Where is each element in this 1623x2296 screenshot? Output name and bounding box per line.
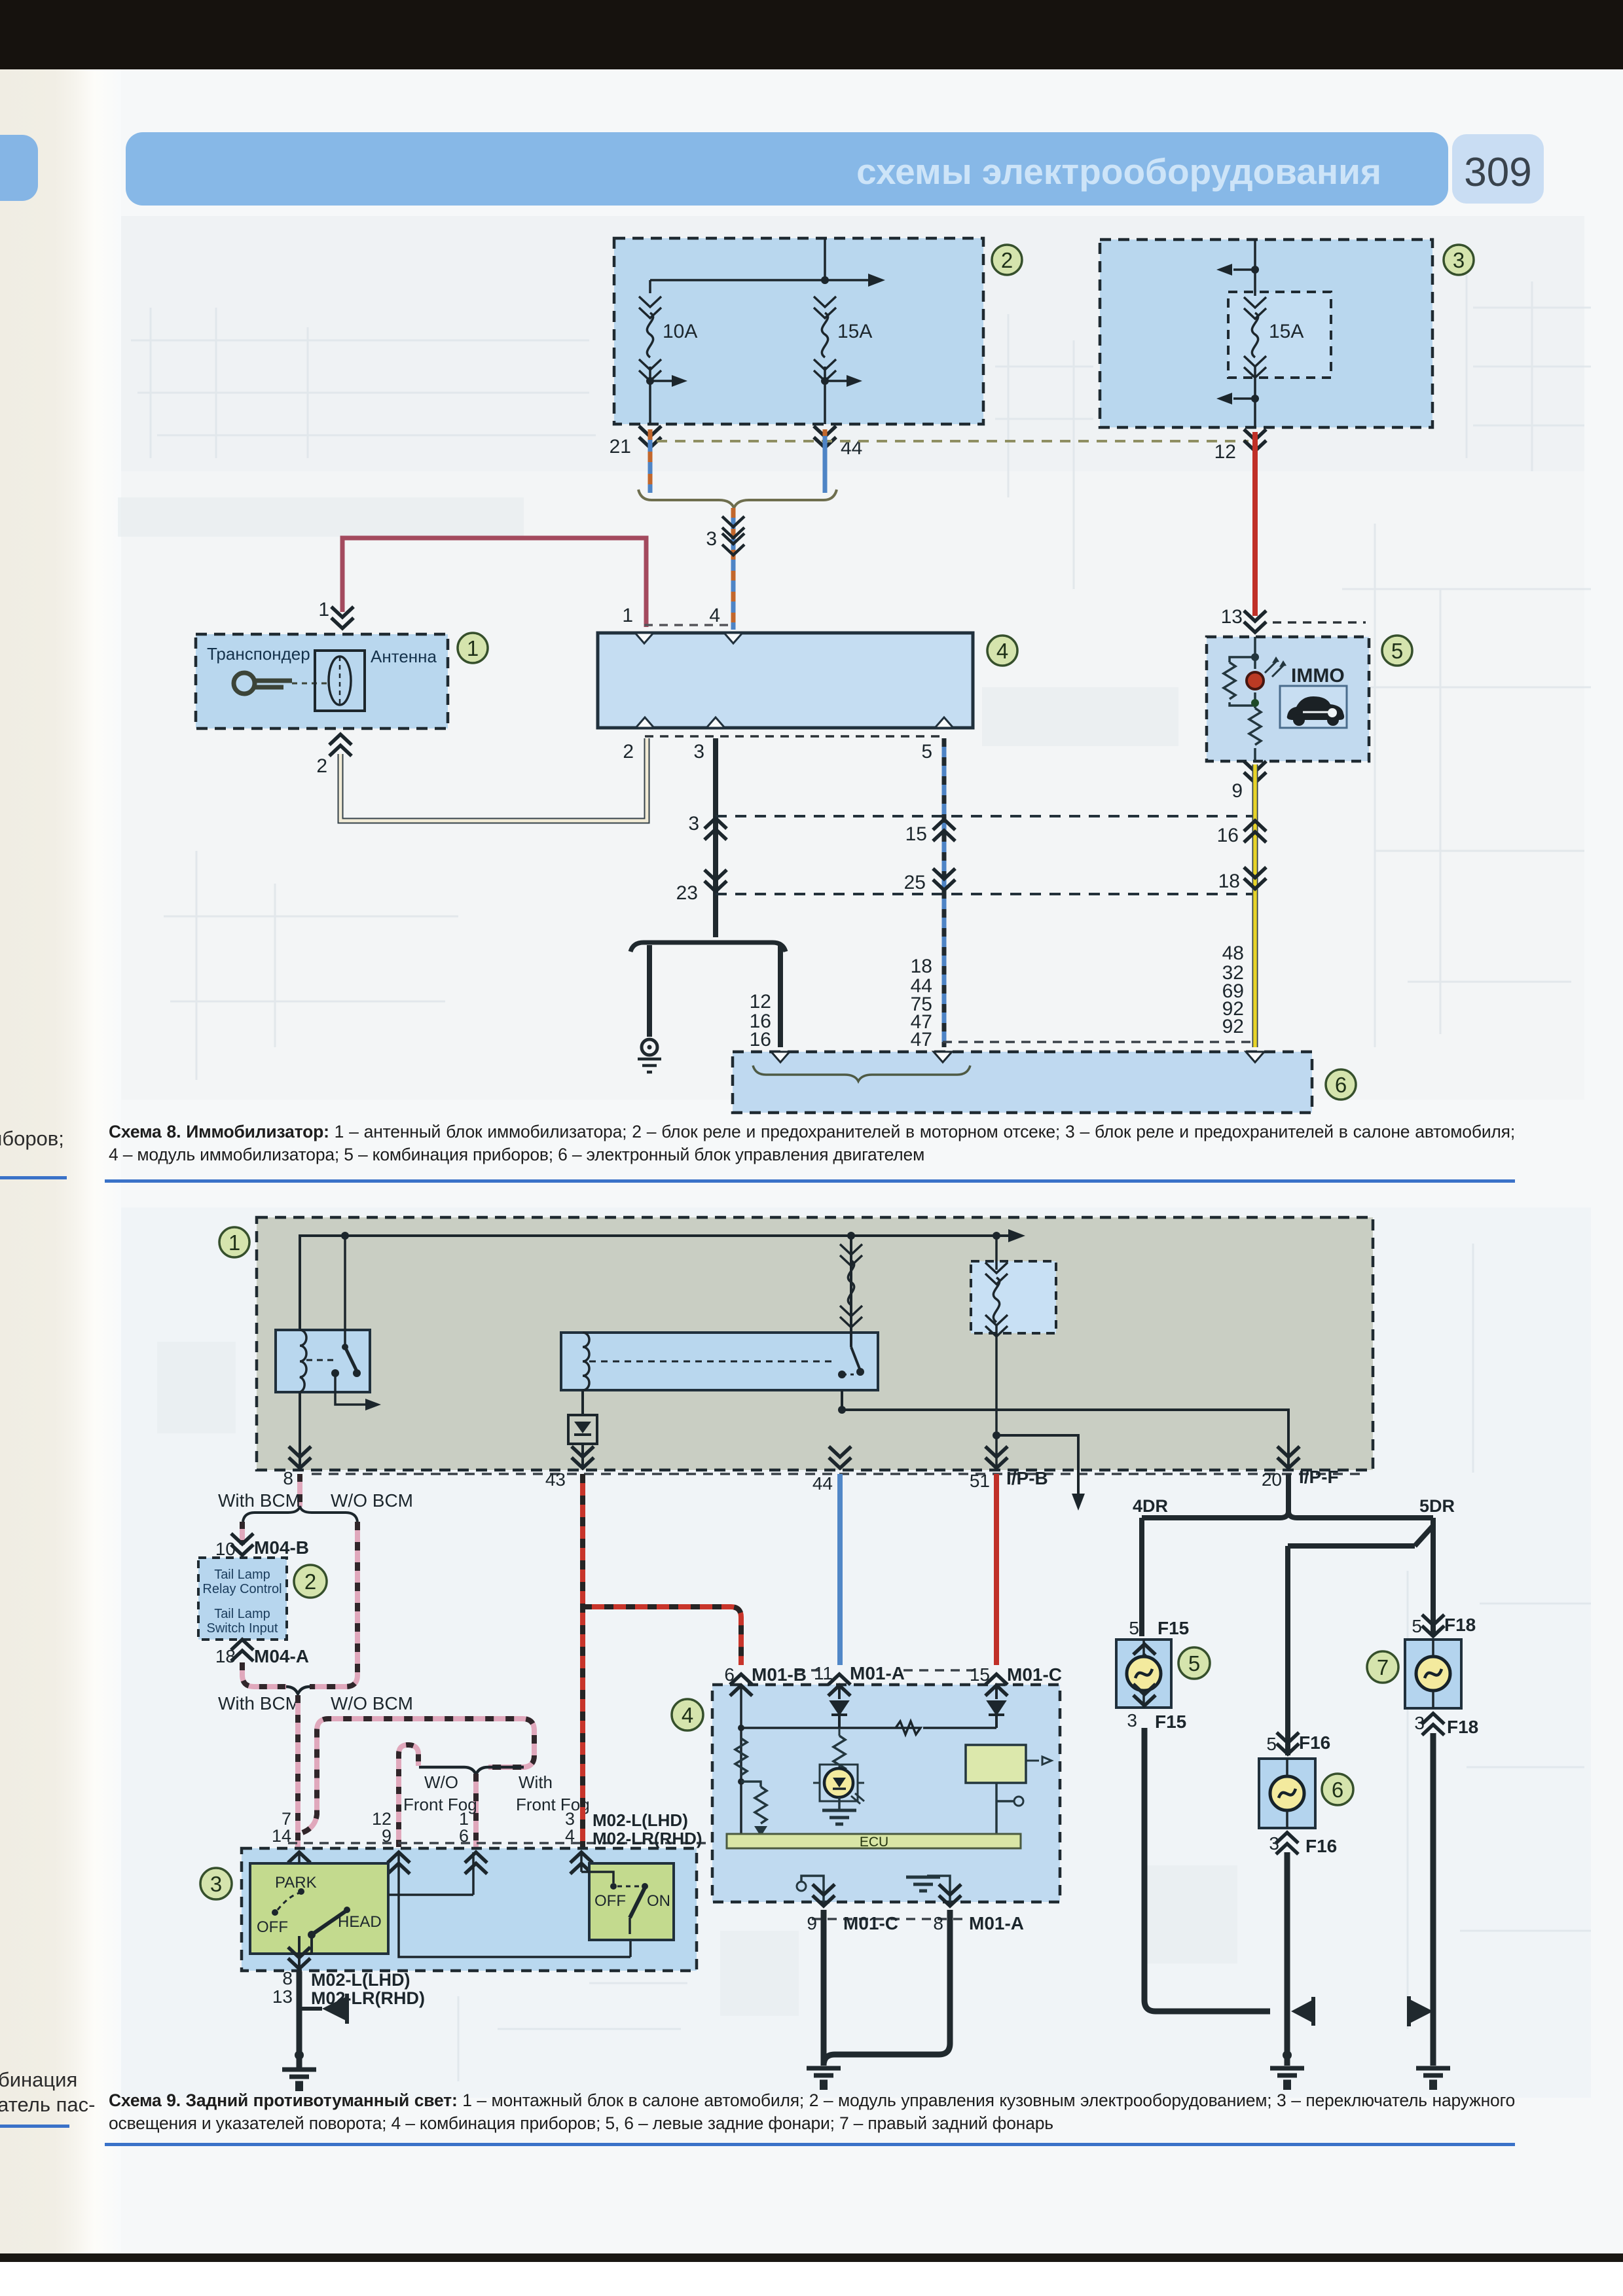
svg-text:Front Fog: Front Fog bbox=[516, 1795, 590, 1814]
svg-text:15: 15 bbox=[905, 823, 927, 845]
svg-text:With BCM: With BCM bbox=[218, 1693, 301, 1713]
svg-text:4: 4 bbox=[996, 639, 1008, 663]
svg-text:4DR: 4DR bbox=[1133, 1496, 1168, 1516]
svg-text:8: 8 bbox=[282, 1968, 293, 1988]
svg-text:25: 25 bbox=[904, 872, 926, 893]
svg-text:5: 5 bbox=[1266, 1734, 1277, 1754]
svg-text:4: 4 bbox=[709, 605, 720, 626]
svg-text:10: 10 bbox=[215, 1539, 236, 1559]
svg-text:5: 5 bbox=[1188, 1651, 1200, 1676]
svg-text:3: 3 bbox=[1414, 1713, 1425, 1733]
svg-text:13: 13 bbox=[1221, 606, 1243, 628]
svg-text:2: 2 bbox=[316, 755, 327, 777]
svg-text:9: 9 bbox=[807, 1913, 817, 1933]
svg-text:ON: ON bbox=[647, 1892, 670, 1910]
svg-text:2: 2 bbox=[304, 1570, 316, 1594]
svg-text:5DR: 5DR bbox=[1419, 1496, 1455, 1516]
svg-text:OFF: OFF bbox=[257, 1918, 288, 1936]
svg-text:92: 92 bbox=[1222, 1016, 1244, 1037]
svg-text:6: 6 bbox=[1332, 1778, 1343, 1802]
svg-text:13: 13 bbox=[272, 1986, 293, 2007]
svg-text:M01-A: M01-A bbox=[850, 1663, 905, 1683]
svg-text:6: 6 bbox=[459, 1826, 469, 1846]
svg-text:48: 48 bbox=[1222, 942, 1244, 964]
svg-text:21: 21 bbox=[610, 436, 631, 457]
svg-text:I/P-F: I/P-F bbox=[1299, 1467, 1339, 1487]
svg-text:7: 7 bbox=[1377, 1655, 1389, 1679]
svg-text:Tail Lamp: Tail Lamp bbox=[214, 1568, 270, 1582]
svg-text:44: 44 bbox=[812, 1473, 833, 1494]
svg-text:16: 16 bbox=[750, 1029, 771, 1050]
svg-text:1: 1 bbox=[228, 1230, 240, 1255]
svg-text:F16: F16 bbox=[1299, 1732, 1330, 1753]
svg-text:Relay Control: Relay Control bbox=[202, 1582, 282, 1596]
svg-text:M02-LR(RHD): M02-LR(RHD) bbox=[593, 1829, 702, 1848]
svg-text:I/P-B: I/P-B bbox=[1006, 1468, 1048, 1488]
svg-text:23: 23 bbox=[676, 882, 698, 904]
svg-text:M02-L(LHD): M02-L(LHD) bbox=[593, 1810, 688, 1830]
svg-text:2: 2 bbox=[623, 741, 634, 762]
svg-text:10A: 10A bbox=[663, 321, 697, 342]
svg-text:F18: F18 bbox=[1444, 1615, 1476, 1635]
svg-text:F15: F15 bbox=[1155, 1712, 1186, 1732]
svg-text:Switch Input: Switch Input bbox=[207, 1621, 278, 1636]
svg-text:4: 4 bbox=[682, 1703, 693, 1727]
svg-text:M04-B: M04-B bbox=[254, 1537, 309, 1558]
svg-text:20: 20 bbox=[1262, 1469, 1282, 1490]
svg-text:15A: 15A bbox=[1269, 321, 1304, 342]
svg-text:14: 14 bbox=[272, 1826, 291, 1846]
svg-text:9: 9 bbox=[1231, 780, 1243, 802]
svg-text:Tail Lamp: Tail Lamp bbox=[214, 1607, 270, 1621]
svg-text:1: 1 bbox=[318, 599, 329, 620]
svg-text:8: 8 bbox=[933, 1913, 943, 1933]
svg-text:3: 3 bbox=[688, 813, 699, 834]
svg-text:2: 2 bbox=[1001, 248, 1013, 272]
svg-text:5: 5 bbox=[921, 741, 932, 762]
svg-text:11: 11 bbox=[814, 1663, 833, 1683]
svg-text:4: 4 bbox=[565, 1826, 575, 1846]
svg-text:3: 3 bbox=[693, 741, 704, 762]
svg-text:HEAD: HEAD bbox=[338, 1913, 382, 1931]
svg-text:IMMO: IMMO bbox=[1291, 665, 1345, 687]
svg-text:OFF: OFF bbox=[594, 1892, 626, 1910]
svg-text:12: 12 bbox=[1214, 441, 1236, 463]
svg-text:ECU: ECU bbox=[860, 1835, 888, 1850]
svg-text:5: 5 bbox=[1391, 639, 1403, 663]
svg-text:3: 3 bbox=[1453, 248, 1465, 272]
svg-text:3: 3 bbox=[210, 1872, 222, 1896]
svg-text:Транспондер: Транспондер bbox=[207, 644, 310, 664]
svg-text:M02-L(LHD): M02-L(LHD) bbox=[311, 1970, 410, 1990]
svg-text:3: 3 bbox=[1269, 1833, 1279, 1854]
svg-text:Антенна: Антенна bbox=[371, 647, 437, 666]
svg-text:M01-B: M01-B bbox=[752, 1664, 807, 1685]
svg-text:43: 43 bbox=[545, 1469, 566, 1490]
svg-text:M01-A: M01-A bbox=[969, 1913, 1024, 1933]
svg-text:12: 12 bbox=[750, 991, 771, 1013]
svg-text:6: 6 bbox=[1335, 1073, 1347, 1097]
svg-text:18: 18 bbox=[911, 956, 932, 977]
svg-text:47: 47 bbox=[911, 1029, 932, 1050]
svg-text:F15: F15 bbox=[1158, 1618, 1189, 1638]
svg-text:With BCM: With BCM bbox=[218, 1490, 301, 1511]
svg-text:W/O: W/O bbox=[424, 1772, 458, 1792]
svg-text:M02-LR(RHD): M02-LR(RHD) bbox=[311, 1988, 425, 2008]
svg-text:15: 15 bbox=[970, 1664, 990, 1685]
svg-text:W/O BCM: W/O BCM bbox=[331, 1693, 413, 1713]
svg-text:15A: 15A bbox=[837, 321, 872, 342]
svg-text:18: 18 bbox=[1218, 870, 1240, 892]
svg-text:F18: F18 bbox=[1447, 1717, 1478, 1737]
svg-text:M04-A: M04-A bbox=[254, 1646, 309, 1666]
svg-text:F16: F16 bbox=[1305, 1836, 1337, 1856]
svg-text:M01-C: M01-C bbox=[1007, 1664, 1062, 1685]
svg-text:51: 51 bbox=[970, 1471, 990, 1491]
svg-text:16: 16 bbox=[1217, 825, 1239, 846]
svg-text:5: 5 bbox=[1129, 1618, 1139, 1638]
svg-text:6: 6 bbox=[724, 1664, 735, 1685]
svg-text:3: 3 bbox=[1127, 1710, 1137, 1731]
svg-text:W/O BCM: W/O BCM bbox=[331, 1490, 413, 1511]
svg-text:1: 1 bbox=[467, 636, 479, 660]
svg-text:1: 1 bbox=[622, 605, 633, 626]
svg-text:18: 18 bbox=[215, 1646, 236, 1666]
svg-text:5: 5 bbox=[1412, 1616, 1422, 1636]
svg-text:8: 8 bbox=[283, 1468, 293, 1488]
svg-text:3: 3 bbox=[706, 528, 717, 550]
svg-text:M01-C: M01-C bbox=[843, 1913, 898, 1933]
svg-text:PARK: PARK bbox=[275, 1874, 317, 1892]
svg-text:9: 9 bbox=[382, 1826, 392, 1846]
svg-text:With: With bbox=[519, 1772, 553, 1792]
